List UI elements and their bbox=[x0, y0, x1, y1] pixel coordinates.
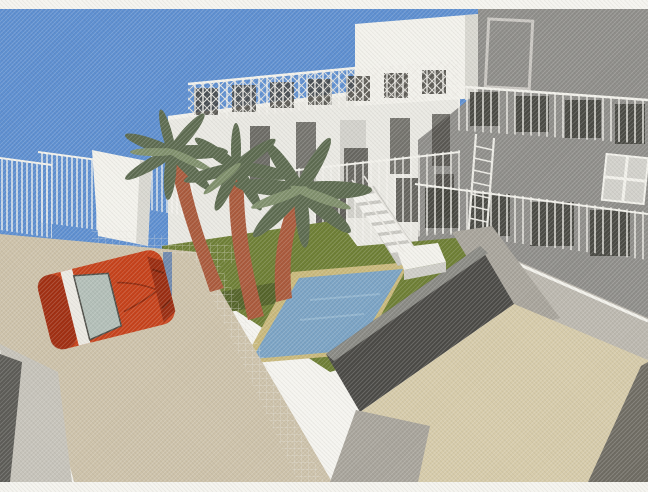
scan-margin-bottom bbox=[0, 483, 648, 492]
scan-margin-top bbox=[0, 0, 648, 9]
villa-render-figure bbox=[0, 0, 648, 492]
scanned-render-page bbox=[0, 0, 648, 492]
four-pane-window bbox=[602, 154, 648, 204]
